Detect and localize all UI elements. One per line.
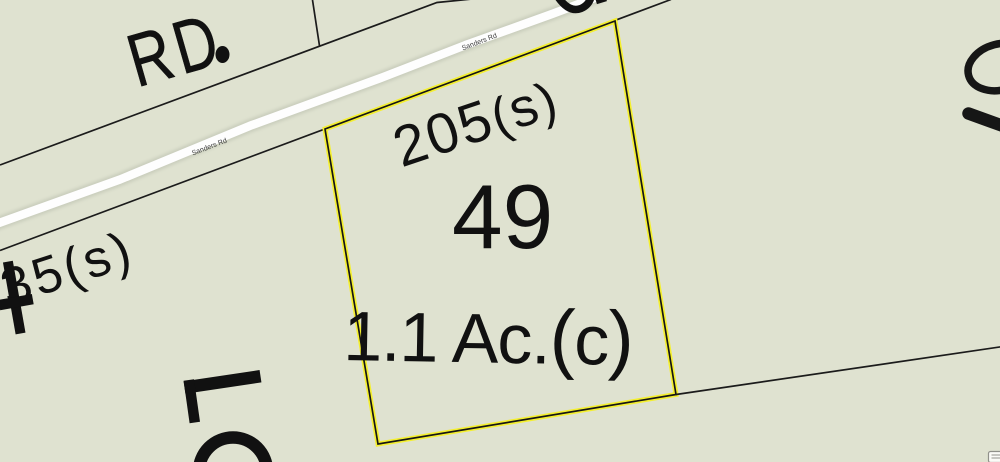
svg-text:1.1 Ac.(c): 1.1 Ac.(c) <box>343 291 634 382</box>
svg-text:49: 49 <box>452 167 553 268</box>
